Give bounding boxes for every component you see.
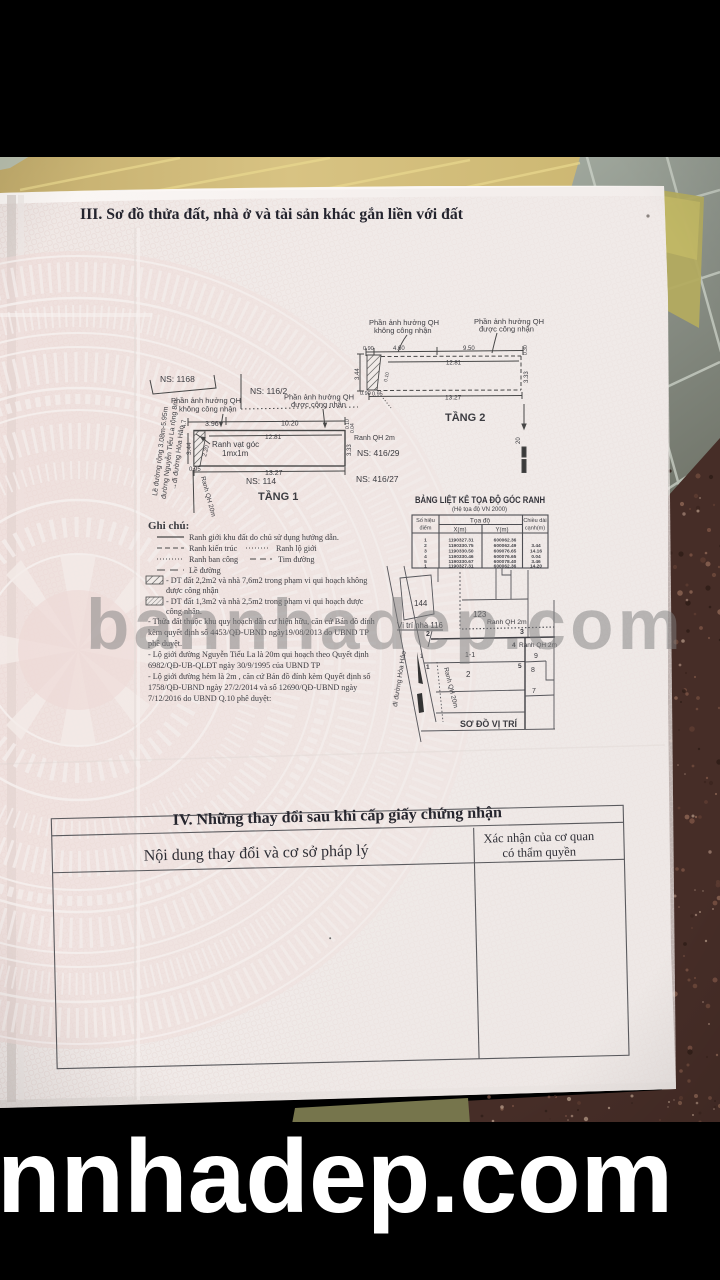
svg-text:nnhadep.com: nnhadep.com [0,1119,673,1235]
